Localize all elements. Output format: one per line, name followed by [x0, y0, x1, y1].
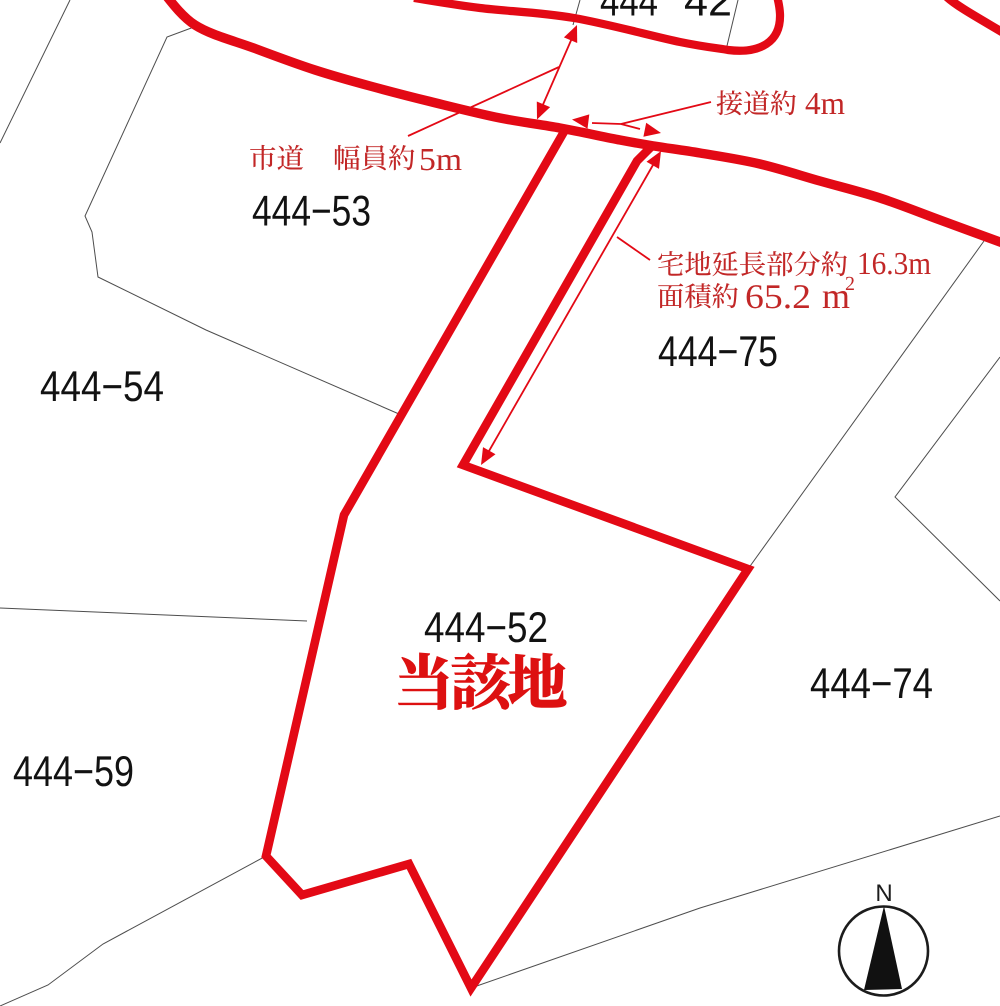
- svg-text:65.2: 65.2: [745, 278, 811, 316]
- svg-text:444−59: 444−59: [13, 748, 134, 796]
- svg-text:444−74: 444−74: [810, 660, 933, 708]
- svg-text:444: 444: [600, 0, 658, 26]
- svg-text:444−53: 444−53: [252, 188, 371, 236]
- svg-text:5m: 5m: [419, 141, 462, 177]
- svg-text:42: 42: [684, 0, 732, 26]
- svg-text:444−75: 444−75: [658, 328, 778, 376]
- svg-text:444−52: 444−52: [424, 604, 548, 652]
- svg-text:444−54: 444−54: [40, 363, 164, 411]
- svg-text:4m: 4m: [805, 85, 845, 121]
- svg-text:16.3m: 16.3m: [857, 245, 931, 281]
- svg-text:N: N: [875, 880, 892, 907]
- svg-text:2: 2: [845, 273, 855, 295]
